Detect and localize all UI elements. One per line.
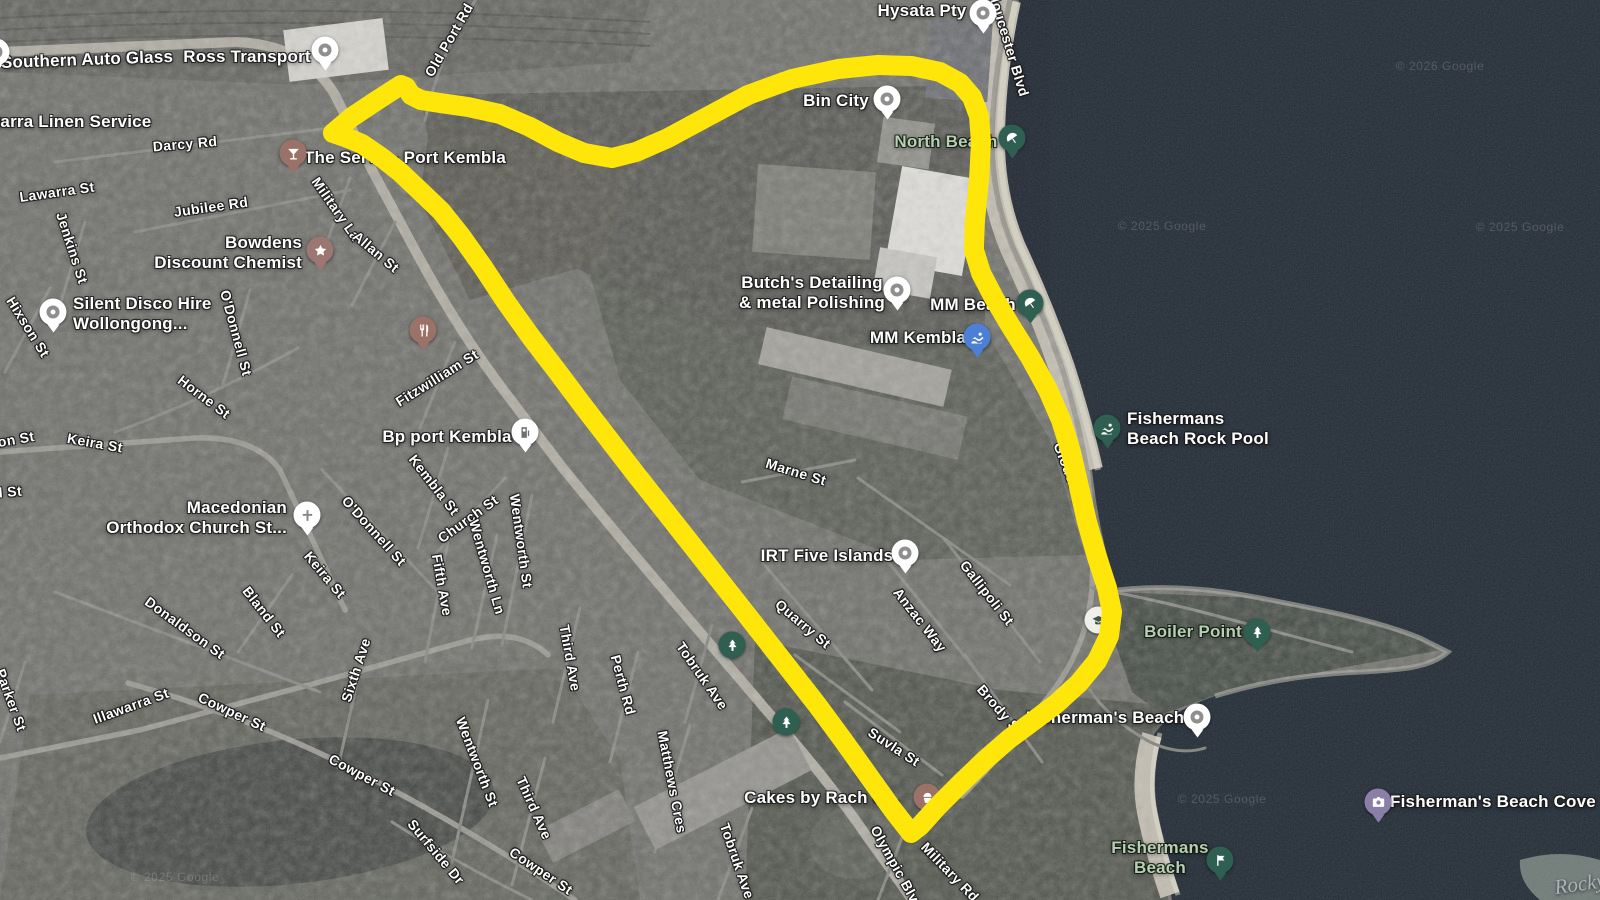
dot-icon xyxy=(977,7,990,20)
map-viewport[interactable]: Southern Auto GlassRoss TransportIllawar… xyxy=(0,0,1600,900)
marker-tail xyxy=(1214,873,1226,881)
marker-fishermans-beach-rock-pool[interactable] xyxy=(1094,415,1121,442)
marker-mm-kembla[interactable] xyxy=(964,324,991,351)
grad-icon xyxy=(1090,612,1106,628)
camera-icon xyxy=(1370,794,1386,810)
marker-tail xyxy=(1251,645,1263,653)
marker-the-iron-yampi[interactable] xyxy=(410,317,437,344)
marker-bowdens-chemist[interactable] xyxy=(307,237,334,264)
marker-the-servo-bar[interactable] xyxy=(280,140,307,167)
marker-tail xyxy=(1372,815,1384,823)
marker-fishermans-beach-poi[interactable] xyxy=(1184,704,1211,731)
marker-irt-five-islands[interactable] xyxy=(892,540,919,567)
marker-park-tree-a[interactable] xyxy=(719,632,746,659)
marker-fishermans-beach-cove-photo[interactable] xyxy=(1365,789,1392,816)
marker-silent-disco-hire[interactable] xyxy=(40,299,67,326)
map-markers-layer xyxy=(0,0,1600,900)
marker-butchs-detailing[interactable] xyxy=(884,277,911,304)
tree-icon xyxy=(724,637,740,653)
marker-park-tree-b[interactable] xyxy=(773,709,800,736)
marker-mm-beach[interactable] xyxy=(1017,290,1044,317)
tree-icon xyxy=(778,714,794,730)
restaurant-icon xyxy=(415,322,431,338)
dot-icon xyxy=(1191,711,1204,724)
marker-tail xyxy=(891,303,903,311)
marker-tail xyxy=(319,63,331,71)
marker-tail xyxy=(0,65,2,73)
marker-tail xyxy=(1024,316,1036,324)
fuel-icon xyxy=(517,424,533,440)
swim-icon xyxy=(969,329,985,345)
marker-tail xyxy=(1006,151,1018,159)
star-icon xyxy=(312,242,328,258)
dot-icon xyxy=(319,44,332,57)
dot-icon xyxy=(891,284,904,297)
martini-icon xyxy=(285,145,301,161)
marker-tail xyxy=(971,350,983,358)
swim-icon xyxy=(1099,420,1115,436)
marker-tail xyxy=(881,112,893,120)
marker-north-beach[interactable] xyxy=(999,125,1026,152)
cupcake-icon xyxy=(919,789,935,805)
umbrella-icon xyxy=(1022,295,1038,311)
marker-macedonian-church[interactable] xyxy=(294,502,321,529)
marker-tail xyxy=(47,325,59,333)
marker-tail xyxy=(1191,730,1203,738)
marker-southern-auto-glass[interactable] xyxy=(0,39,10,66)
dot-icon xyxy=(881,93,894,106)
marker-cakes-by-rach[interactable] xyxy=(914,784,941,811)
marker-tail xyxy=(1101,441,1113,449)
dot-icon xyxy=(899,547,912,560)
marker-tail xyxy=(417,343,429,351)
marker-boiler-point-park[interactable] xyxy=(1244,619,1271,646)
marker-tail xyxy=(921,810,933,818)
umbrella-icon xyxy=(1004,130,1020,146)
marker-school[interactable] xyxy=(1085,607,1112,634)
marker-tail xyxy=(977,26,989,34)
marker-tail xyxy=(899,566,911,574)
marker-tail xyxy=(287,166,299,174)
cross-icon xyxy=(299,507,315,523)
marker-tail xyxy=(314,263,326,271)
dot-icon xyxy=(47,306,60,319)
dot-icon xyxy=(0,46,3,59)
marker-tail xyxy=(519,445,531,453)
marker-tail xyxy=(301,528,313,536)
marker-ross-transport[interactable] xyxy=(312,37,339,64)
marker-bp-port-kembla[interactable] xyxy=(512,419,539,446)
marker-fishermans-beach-flag[interactable] xyxy=(1207,847,1234,874)
tree-icon xyxy=(1249,624,1265,640)
marker-hysata-pty[interactable] xyxy=(970,0,997,27)
marker-bin-city[interactable] xyxy=(874,86,901,113)
flag-icon xyxy=(1212,852,1228,868)
